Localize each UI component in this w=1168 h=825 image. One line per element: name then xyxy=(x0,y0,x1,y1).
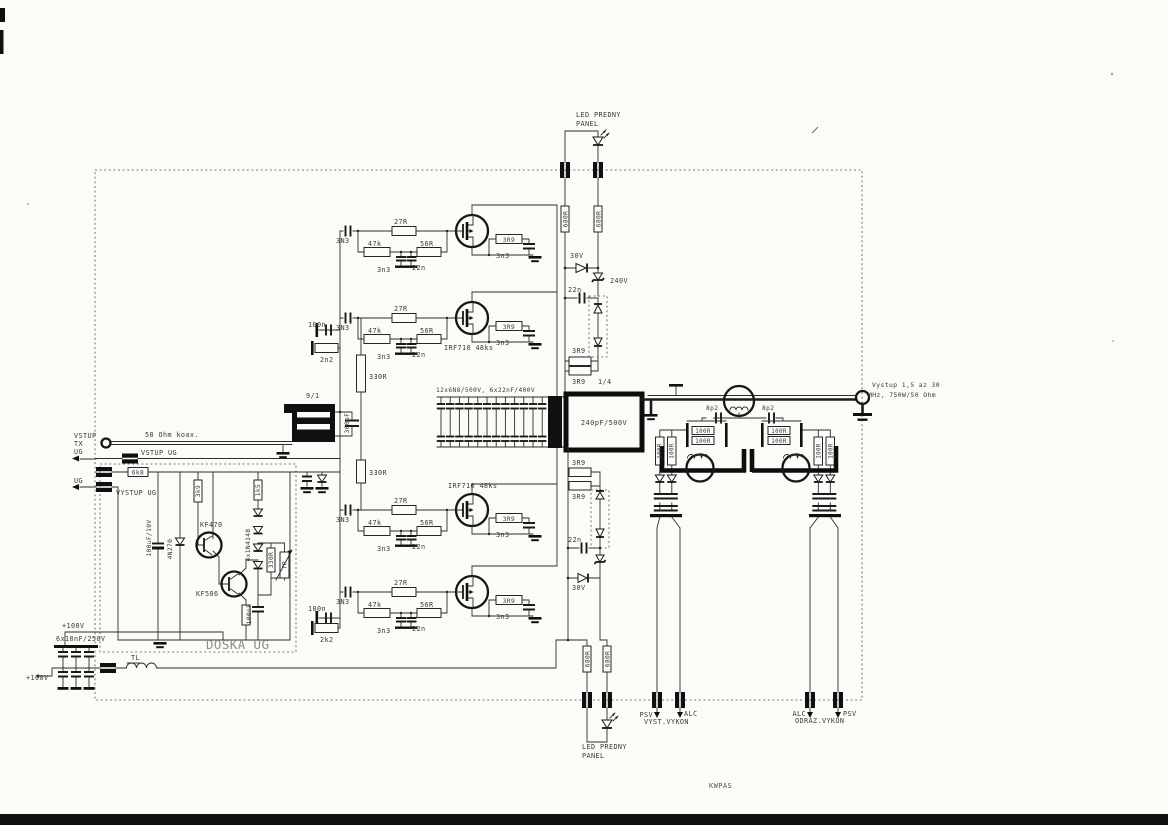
label-res-100r-left-b: 100R xyxy=(695,439,711,445)
label-res-47k-1: 47k xyxy=(368,240,381,248)
coupler-current-transformer xyxy=(724,386,754,416)
label-res-3r9-top-lower: 3R9 xyxy=(572,378,585,386)
directional-coupler xyxy=(642,384,872,718)
label-res-2k2-input-lower: 2k2 xyxy=(320,636,333,644)
label-cap-3n3-fb-4: 3n3 xyxy=(496,613,509,621)
label-res-680r-bot-right: 680R xyxy=(604,651,611,668)
label-project-name: KWPAS xyxy=(709,782,732,790)
label-cap-bank-output: 12x6N8/500V, 6x22nF/400V xyxy=(436,387,535,394)
vstup-tx-connector xyxy=(102,439,111,448)
label-led-front-panel-bot-1: LED PREDNY xyxy=(582,743,627,751)
label-res-330r-lower: 330R xyxy=(369,469,387,477)
label-res-100r-vert-4: 100R xyxy=(828,443,834,459)
label-res-100r-right-b: 100R xyxy=(771,439,787,445)
input-network-lower xyxy=(311,611,340,635)
label-board-name: DOSKA UG xyxy=(206,637,269,652)
label-res-3r9-fb-2: 3R9 xyxy=(503,324,515,331)
vystup-ug-line xyxy=(80,487,118,640)
label-cap-100n-input-upper: 100n xyxy=(308,321,326,329)
label-res-27r-2: 27R xyxy=(394,305,408,313)
label-res-6k8: 6k8 xyxy=(132,470,144,477)
led-top-icon xyxy=(593,130,609,148)
coupler-network-left xyxy=(650,421,746,692)
label-cap-240pf: 240pF/500V xyxy=(581,419,628,427)
label-cap-360pf: 360pF xyxy=(344,413,351,434)
label-cap-22n-top: 22n xyxy=(568,286,581,294)
label-cap-100nf: 100nF xyxy=(246,604,253,625)
feedthrough-supply-icon xyxy=(100,663,116,673)
label-led-front-panel-top-2: PANEL xyxy=(576,120,598,128)
label-cap-3n3-fb-2: 3n3 xyxy=(496,339,509,347)
label-cap-3n3-input-4: 3N3 xyxy=(336,598,349,606)
output-transformer-primary xyxy=(548,396,562,448)
output-cap-bank xyxy=(437,397,547,447)
label-trimmer-tr: TR xyxy=(282,561,289,569)
label-cap-3n3-input-2: 3N3 xyxy=(336,324,349,332)
label-res-47k-2: 47k xyxy=(368,327,381,335)
label-ug-in-label: UG xyxy=(74,448,83,456)
ug-inject-network xyxy=(290,472,340,493)
label-res-2n2-input-upper: 2n2 xyxy=(320,356,333,364)
label-res-47k-4: 47k xyxy=(368,601,381,609)
label-res-100r-right-a: 100R xyxy=(771,429,787,435)
label-res-100r-left-a: 100R xyxy=(695,429,711,435)
label-led-front-panel-top-1: LED PREDNY xyxy=(576,111,621,119)
label-res-100r-vert-2: 100R xyxy=(670,443,676,459)
label-diode-4n270: 4N270 xyxy=(167,539,174,560)
label-cap-22n-gnd-4: 22n xyxy=(412,625,425,633)
label-res-47k-3: 47k xyxy=(368,519,381,527)
coax-line xyxy=(111,442,292,453)
ug-board xyxy=(118,472,292,648)
label-cap-3n3-gnd-4: 3n3 xyxy=(377,627,390,635)
feedthrough-alc-fwd-icon xyxy=(675,692,685,708)
label-cap-8p2-right: 8p2 xyxy=(762,405,774,412)
feedthrough-vstup-ug-icon xyxy=(122,454,138,464)
power-entry xyxy=(37,632,569,690)
label-mosfet-type-upper: IRF710 48ks xyxy=(444,344,493,352)
schematic-canvas: LED PREDNYPANEL680R680R30V240V22n3R93R91… xyxy=(0,0,1168,825)
label-cap-8p2-left: 8p2 xyxy=(706,405,718,412)
coupler-network-right xyxy=(752,421,841,692)
label-res-100r-vert-3: 100R xyxy=(816,443,822,459)
label-cap-3n3-fb-3: 3n3 xyxy=(496,531,509,539)
label-cap-22n-gnd-3: 22n xyxy=(412,543,425,551)
label-meter-psv-ref: PSV xyxy=(843,710,856,718)
label-meter-fwd-caption: VYST.VYKON xyxy=(644,718,689,726)
label-cap-3n3-gnd-2: 3n3 xyxy=(377,353,390,361)
label-vstup-ug: VSTUP UG xyxy=(141,449,177,457)
label-vystup-ug: VYSTUP UG xyxy=(116,489,156,497)
label-coax-type: 50 Ohm koax. xyxy=(145,431,199,439)
indicator-chain-bottom xyxy=(567,447,618,742)
label-transistor-kf470: KF470 xyxy=(200,521,222,529)
label-mosfet-type-lower: IRF710 48ks xyxy=(448,482,497,490)
label-res-330r-upper: 330R xyxy=(369,373,387,381)
label-ug-out-label: UG xyxy=(74,477,83,485)
label-output-spec-1: Vystup 1,5 az 30 xyxy=(872,381,940,389)
label-res-56r-1: 56R xyxy=(420,240,434,248)
label-res-1k5: 1k5 xyxy=(255,484,262,496)
chassis-border xyxy=(95,170,862,700)
label-cap-3n3-gnd-3: 3n3 xyxy=(377,545,390,553)
scanned-schematic-page: LED PREDNYPANEL680R680R30V240V22n3R93R91… xyxy=(0,0,1168,825)
label-diode-30v-bot: 30V xyxy=(572,584,585,592)
label-cap-bank-supply: 6x10nF/250V xyxy=(56,635,105,643)
label-cap-3n3-input-1: 3N3 xyxy=(336,237,349,245)
label-res-3r9-top-fraction: 1/4 xyxy=(598,378,611,386)
label-res-56r-4: 56R xyxy=(420,601,434,609)
label-diode-30v-top: 30V xyxy=(570,252,583,260)
vstup-ug-line xyxy=(80,459,340,460)
feedthrough-bot-1-icon xyxy=(582,692,592,708)
label-led-front-panel-bot-2: PANEL xyxy=(582,752,604,760)
label-diodes-4x1n4148: 4x1N4148 xyxy=(245,528,252,561)
feedthrough-vystup-ug-icon xyxy=(96,482,112,492)
feedthrough-psv-fwd-icon xyxy=(652,692,662,708)
label-transformer-ratio: 9/1 xyxy=(306,392,319,400)
label-inductor-tl: TL xyxy=(131,654,140,662)
label-cap-100n-input-lower: 100n xyxy=(308,605,326,613)
interstage-330r xyxy=(357,318,366,510)
label-cap-22n-gnd-1: 22n xyxy=(412,264,425,272)
label-res-3r9-top-upper: 3R9 xyxy=(572,347,585,355)
label-res-3r9-bot-lower: 3R9 xyxy=(572,493,585,501)
label-input-vstup: VSTUP xyxy=(74,432,96,440)
label-res-3r9-fb-4: 3R9 xyxy=(503,598,515,605)
label-res-3r9-fb-3: 3R9 xyxy=(503,516,515,523)
label-cap-22n-bot: 22n xyxy=(568,536,581,544)
label-cap-3n3-fb-1: 3n3 xyxy=(496,252,509,260)
label-res-680r-bot-left: 680R xyxy=(584,651,591,668)
label-res-100r-vert-1: 100R xyxy=(658,443,664,459)
label-cap-3n3-gnd-1: 3n3 xyxy=(377,266,390,274)
label-res-3r9-fb-1: 3R9 xyxy=(503,237,515,244)
label-res-56r-3: 56R xyxy=(420,519,434,527)
drain-and-gate-buses xyxy=(340,205,557,628)
label-res-3k9: 3k9 xyxy=(195,485,202,497)
labels-layer: LED PREDNYPANEL680R680R30V240V22n3R93R91… xyxy=(26,111,940,790)
supply-cap-bank xyxy=(58,648,95,690)
label-res-330r-doska: 330R xyxy=(268,552,275,569)
label-meter-alc-fwd: ALC xyxy=(684,710,697,718)
led-bottom-icon xyxy=(602,713,618,731)
tl-inductor xyxy=(127,663,157,668)
label-zener-240v-top: 240V xyxy=(610,277,628,285)
label-res-27r-3: 27R xyxy=(394,497,408,505)
label-cap-100uf: 100uF/10V xyxy=(146,519,153,556)
label-transistor-kf506: KF506 xyxy=(196,590,218,598)
label-res-56r-2: 56R xyxy=(420,327,434,335)
label-input-tx: TX xyxy=(74,440,83,448)
label-res-27r-1: 27R xyxy=(394,218,408,226)
label-res-3r9-bot-upper: 3R9 xyxy=(572,459,585,467)
label-res-27r-4: 27R xyxy=(394,579,408,587)
label-output-spec-2: MHz, 750W/50 Ohm xyxy=(868,391,936,399)
label-supply-100v-upper: +100V xyxy=(62,622,84,630)
label-res-680r-top-right: 680R xyxy=(595,211,602,228)
label-cap-3n3-input-3: 3N3 xyxy=(336,516,349,524)
label-res-680r-top-left: 680R xyxy=(562,211,569,228)
feedthrough-6k8-icon xyxy=(96,467,112,477)
label-cap-22n-gnd-2: 22n xyxy=(412,351,425,359)
label-supply-100v-lower: +100V xyxy=(26,674,48,682)
label-meter-ref-caption: ODRAZ.VYKON xyxy=(795,717,844,725)
